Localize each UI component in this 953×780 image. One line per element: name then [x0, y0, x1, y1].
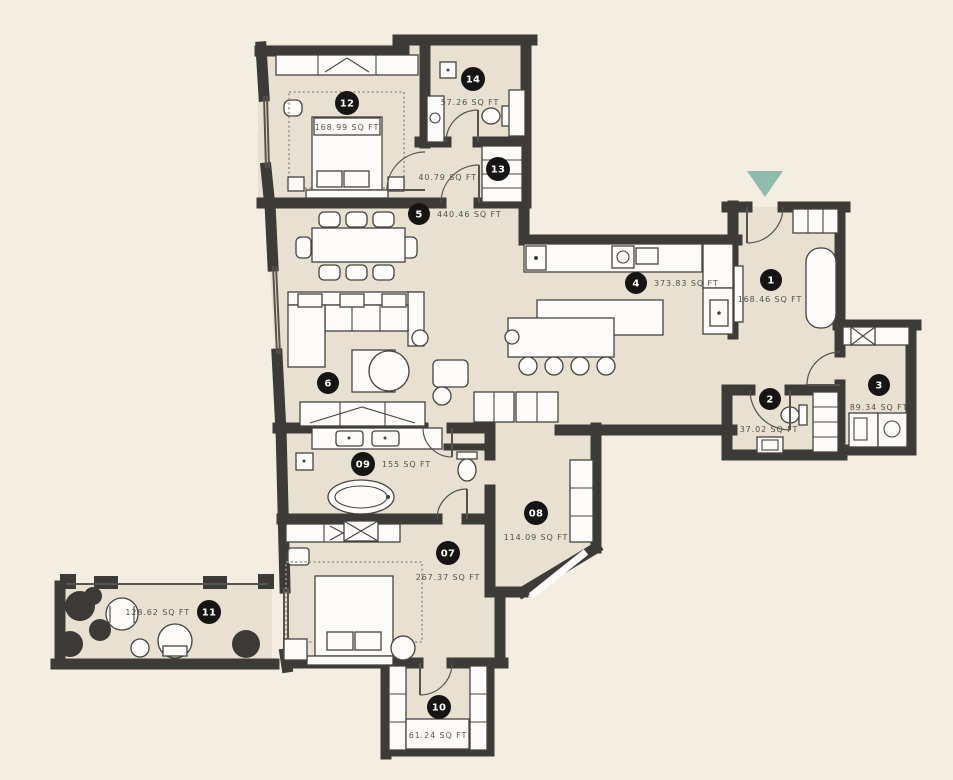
closet-shelves-icon [470, 666, 487, 750]
room-area-label: 440.46 SQ FT [437, 210, 502, 219]
sofa-chaise [288, 305, 325, 367]
wardrobe-icon [300, 402, 425, 426]
plant-icon [57, 631, 83, 657]
room-badge-11: 11 [197, 600, 221, 624]
entry-cabinet-icon [793, 209, 838, 233]
room-badge-09: 09 [351, 452, 375, 476]
toilet-icon [458, 459, 476, 481]
sofa-pillow [298, 294, 322, 307]
bed-bench-icon [306, 190, 388, 198]
room-area-label: 57.26 SQ FT [441, 98, 500, 107]
room-area-label: 168.99 SQ FT [315, 123, 380, 132]
room-badge-2: 2 [759, 388, 781, 410]
room-area-label: 40.79 SQ FT [418, 173, 477, 182]
round-nightstand-icon [391, 636, 415, 660]
room-number: 5 [415, 210, 422, 221]
bar-stool-icon [571, 357, 589, 375]
room-badge-3: 3 [868, 374, 890, 396]
toilet-tank [799, 405, 807, 425]
nightstand-icon [288, 177, 304, 191]
room-number: 13 [491, 165, 506, 176]
armchair-icon [433, 360, 468, 387]
chair-cushion [163, 646, 187, 656]
sofa-pillow [382, 294, 406, 307]
sink-icon [757, 437, 783, 453]
floor-plan: 1 168.46 SQ FT 2 37.02 SQ FT 3 89.34 SQ … [0, 0, 953, 780]
dining-chair-icon [373, 265, 394, 280]
room-number: 4 [632, 279, 639, 290]
balcony-post [94, 576, 118, 589]
room-badge-5: 5 [408, 203, 430, 225]
dining-chair-icon [373, 212, 394, 227]
side-table-icon [412, 330, 428, 346]
dining-chair-icon [319, 212, 340, 227]
room-badge-12: 12 [335, 91, 359, 115]
room-badge-10: 10 [427, 695, 451, 719]
balcony-post [60, 574, 76, 589]
closet-shelves-icon [389, 666, 406, 750]
pillow-icon [317, 171, 342, 187]
dining-table-icon [312, 228, 405, 262]
dining-chair-icon [296, 237, 311, 258]
island-seating-counter [508, 318, 614, 357]
nightstand-icon [388, 177, 404, 191]
toilet-icon [482, 108, 500, 124]
shower-icon [509, 90, 525, 136]
cooktop-icon [636, 248, 658, 264]
sofa-icon [325, 305, 408, 331]
plant-icon [84, 587, 102, 605]
nightstand-icon [284, 639, 307, 660]
bar-stool-icon [597, 357, 615, 375]
room-area-label: 128.62 SQ FT [125, 608, 190, 617]
balcony-post [258, 574, 274, 589]
room-area-label: 61.24 SQ FT [409, 731, 468, 740]
island-sink-icon [505, 330, 519, 344]
room-number: 08 [529, 509, 544, 520]
room-area-label: 114.09 SQ FT [504, 533, 569, 542]
dining-chair-icon [346, 212, 367, 227]
room-badge-1: 1 [760, 269, 782, 291]
dining-chair-icon [319, 265, 340, 280]
round-table-icon [369, 351, 409, 391]
room-area-label: 168.46 SQ FT [738, 295, 803, 304]
balcony-post [203, 576, 227, 589]
plant-icon [232, 630, 260, 658]
closet-icon [570, 460, 593, 542]
room-area-label: 37.02 SQ FT [740, 425, 799, 434]
room-badge-07: 07 [436, 541, 460, 565]
pillow-icon [344, 171, 369, 187]
ottoman-icon [433, 387, 451, 405]
bar-stool-icon [545, 357, 563, 375]
chair-icon [284, 100, 302, 116]
room-area-label: 267.37 SQ FT [416, 573, 481, 582]
bed-headboard [307, 656, 393, 665]
room-number: 12 [340, 99, 355, 110]
windows [66, 96, 288, 658]
room-badge-08: 08 [524, 501, 548, 525]
sink-icon [612, 246, 634, 268]
console-table-icon [734, 266, 743, 322]
room-number: 6 [324, 379, 331, 390]
bathtub-icon [328, 480, 394, 514]
entry-arrow-icon [747, 171, 783, 197]
room-badge-14: 14 [461, 67, 485, 91]
bar-stool-icon [519, 357, 537, 375]
room-badge-6: 6 [317, 372, 339, 394]
room-number: 1 [767, 276, 774, 287]
room-number: 07 [441, 549, 456, 560]
room-number: 10 [432, 703, 447, 714]
room-number: 3 [875, 381, 882, 392]
room-number: 14 [466, 75, 481, 86]
toilet-tank [457, 452, 477, 459]
pillow-icon [355, 632, 381, 650]
entry-bench-icon [806, 248, 836, 328]
room-badge-13: 13 [486, 157, 510, 181]
pillow-icon [327, 632, 353, 650]
room-badge-4: 4 [625, 272, 647, 294]
room-number: 11 [202, 608, 217, 619]
outdoor-table-icon [131, 639, 149, 657]
room-number: 09 [356, 460, 371, 471]
room-number: 2 [766, 395, 773, 406]
dryer-icon [878, 413, 907, 447]
room-area-label: 155 SQ FT [382, 460, 431, 469]
sofa-pillow [340, 294, 364, 307]
dining-chair-icon [346, 265, 367, 280]
room-area-label: 373.83 SQ FT [654, 279, 719, 288]
room-area-label: 89.34 SQ FT [850, 403, 909, 412]
